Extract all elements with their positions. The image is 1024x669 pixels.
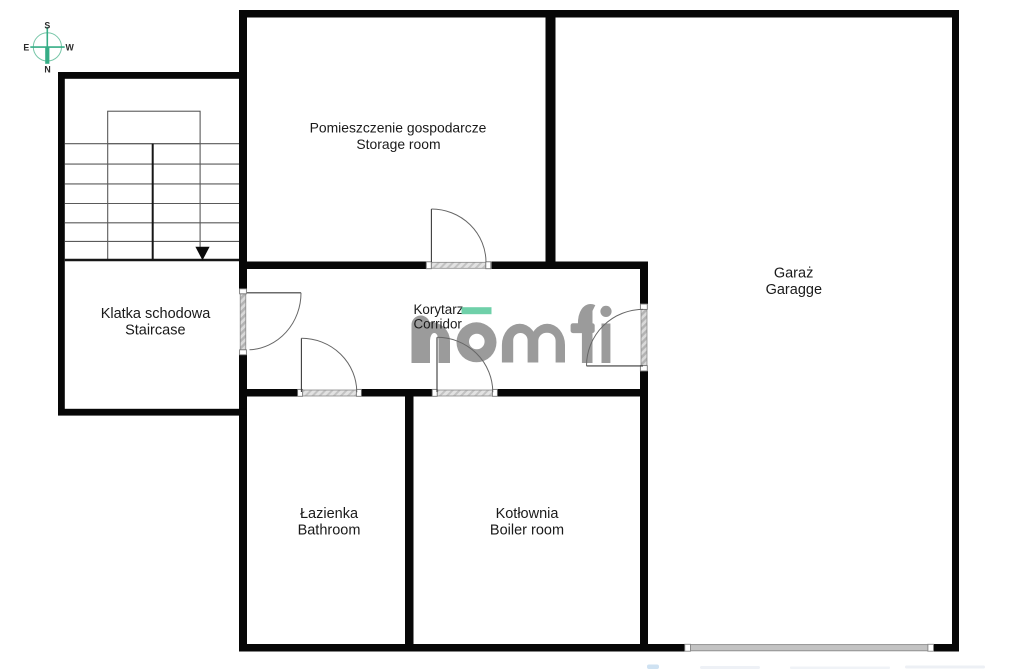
svg-text:Garaż: Garaż	[774, 266, 814, 282]
svg-text:S: S	[44, 21, 50, 31]
svg-text:Korytarz: Korytarz	[414, 302, 464, 317]
svg-text:Staircase: Staircase	[125, 322, 185, 338]
svg-text:Garagge: Garagge	[766, 282, 822, 298]
svg-text:Bathroom: Bathroom	[298, 523, 361, 539]
svg-text:E: E	[23, 43, 29, 53]
svg-text:Storage room: Storage room	[356, 136, 440, 152]
svg-text:Łazienka: Łazienka	[300, 506, 359, 522]
svg-text:Pomieszczenie gospodarcze: Pomieszczenie gospodarcze	[310, 119, 487, 135]
svg-text:Kotłownia: Kotłownia	[496, 506, 560, 522]
svg-text:W: W	[65, 43, 74, 53]
svg-text:Boiler room: Boiler room	[490, 523, 564, 539]
svg-text:Corridor: Corridor	[414, 316, 463, 331]
svg-text:Klatka schodowa: Klatka schodowa	[101, 306, 212, 322]
svg-text:N: N	[44, 65, 50, 75]
